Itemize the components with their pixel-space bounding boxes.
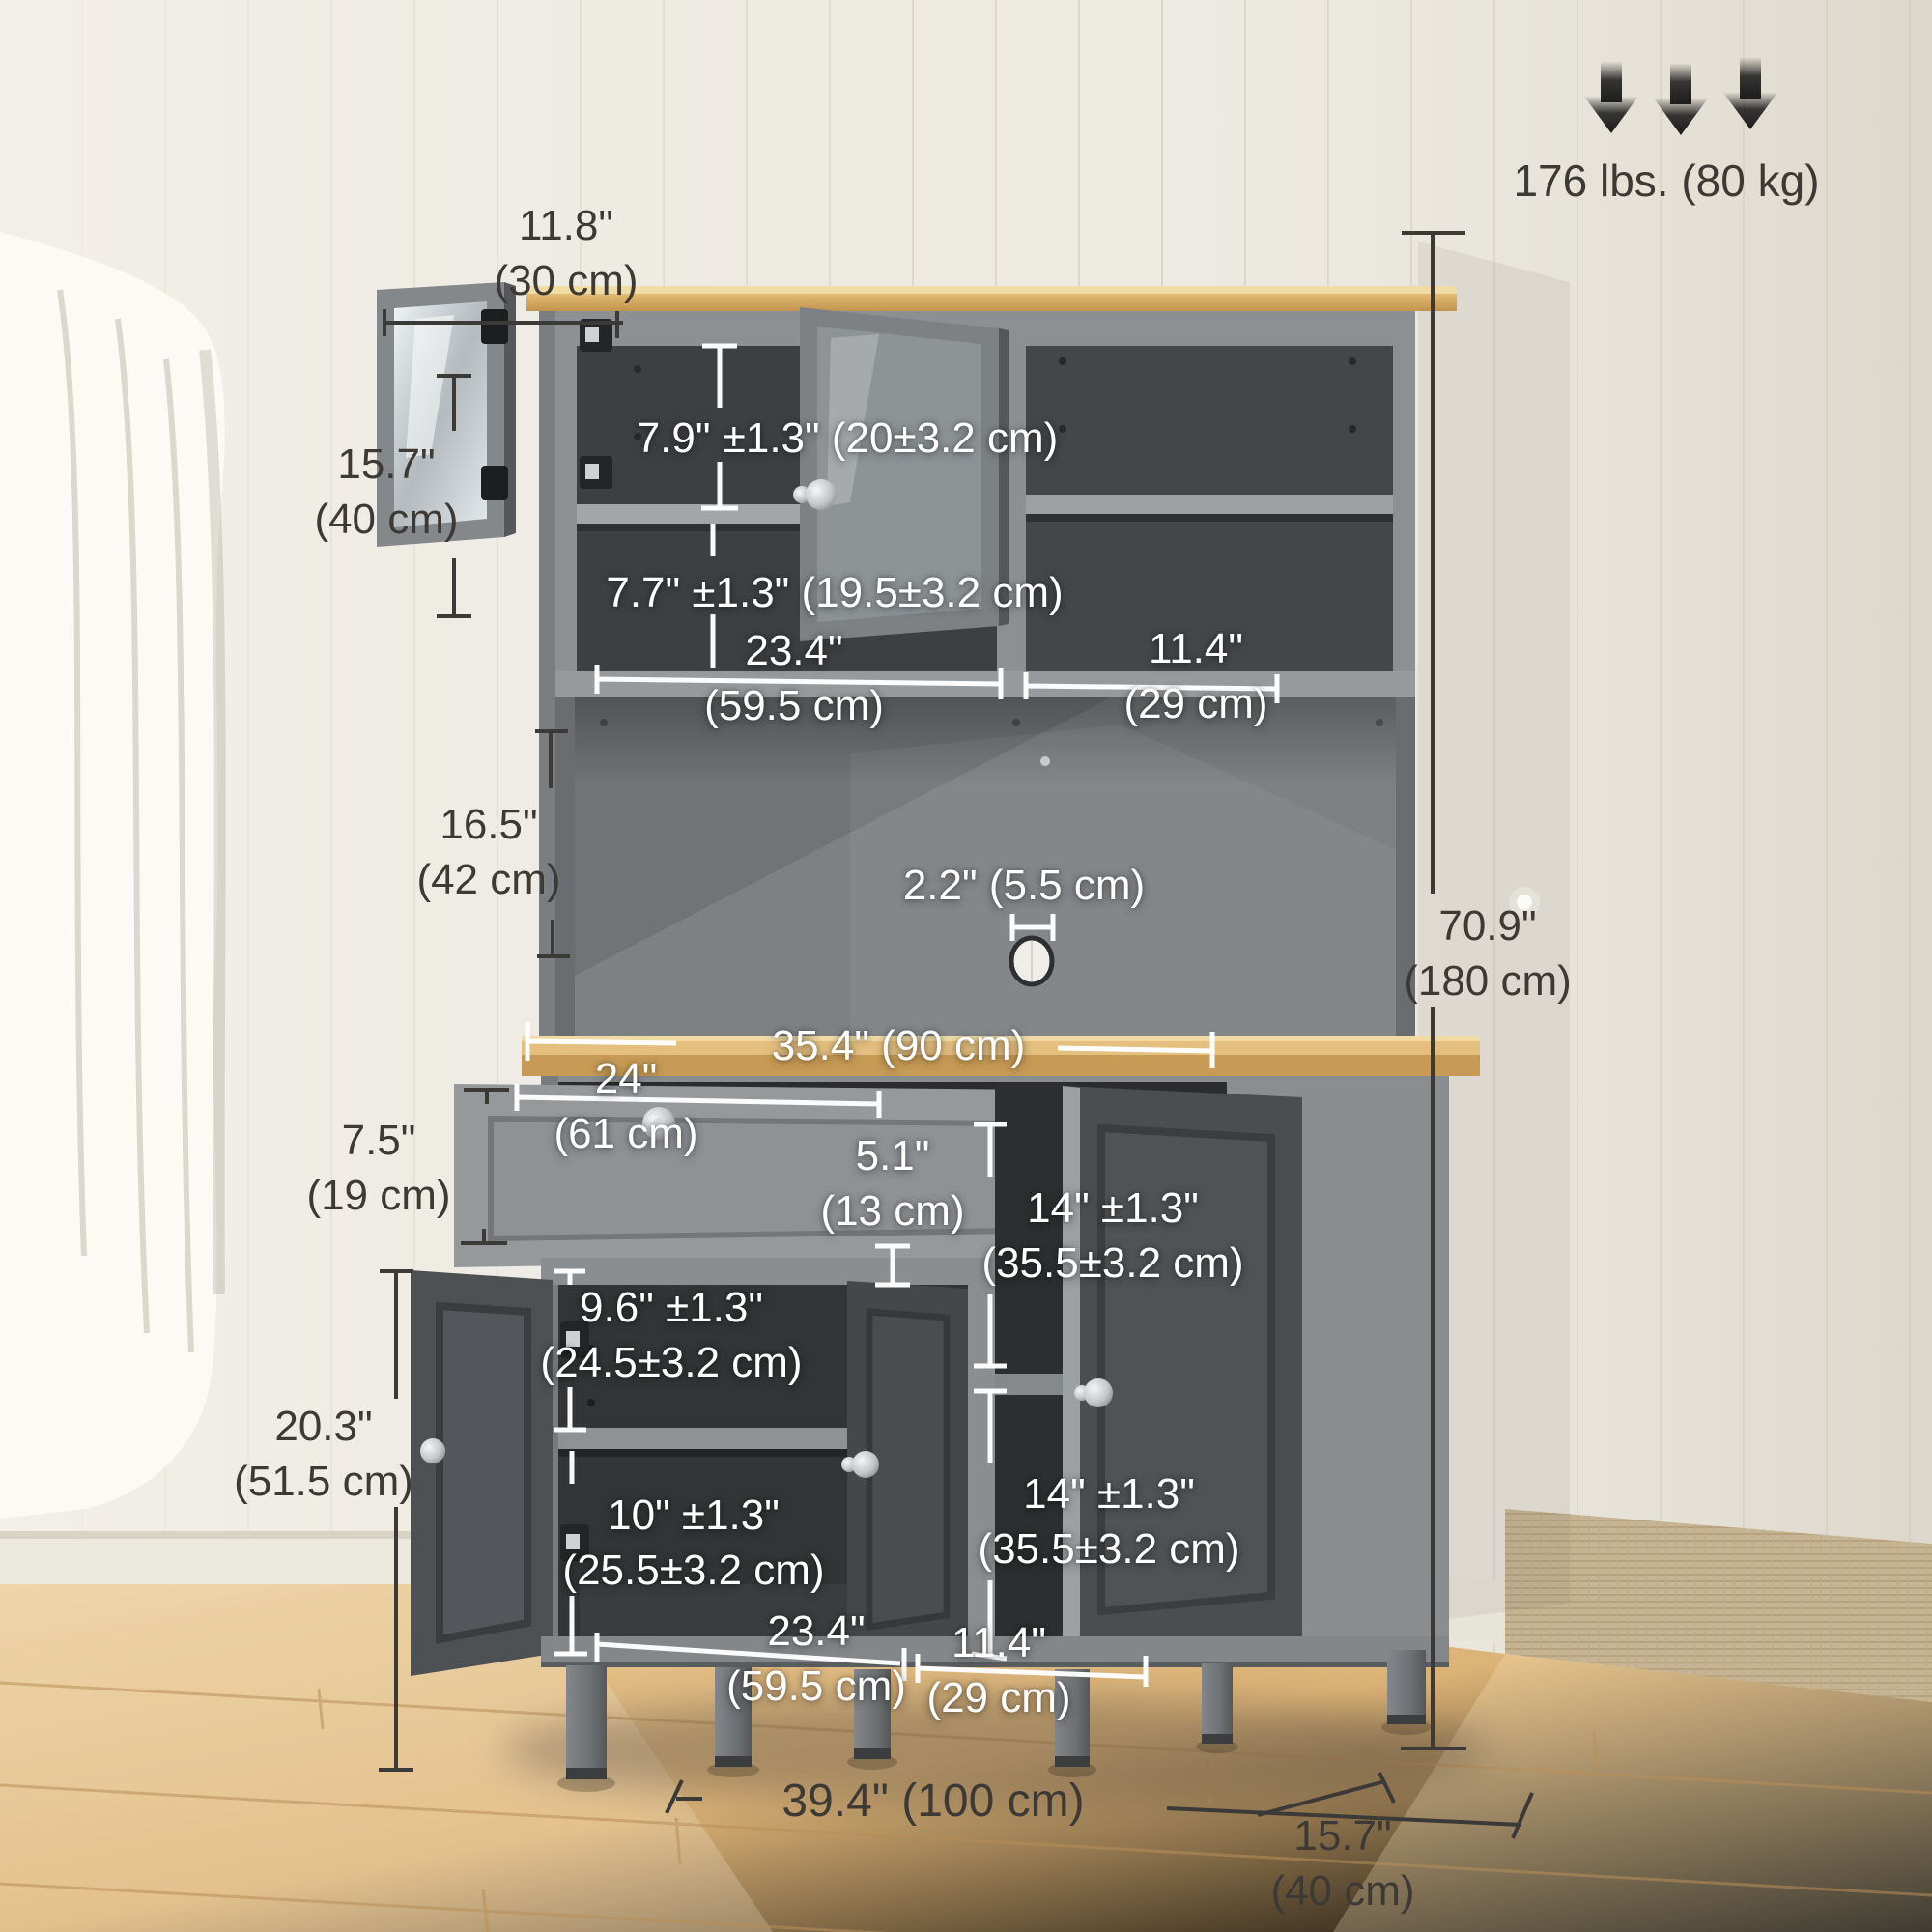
baseboard-left	[0, 1531, 444, 1584]
dim-drawer-height: 7.5" (19 cm)	[306, 1113, 450, 1223]
knob-icon	[852, 1451, 879, 1478]
dim-right-upper-compartment: 14" ±1.3" (35.5±3.2 cm)	[981, 1180, 1243, 1291]
dim-weight-capacity: 176 lbs. (80 kg)	[1513, 153, 1819, 211]
dim-hutch-shelf-lower: 7.7" ±1.3" (19.5±3.2 cm)	[606, 565, 1063, 620]
dim-overall-depth: 15.7" (40 cm)	[1270, 1808, 1414, 1918]
dim-countertop-width: 35.4" (90 cm)	[772, 1018, 1026, 1073]
dim-right-lower-compartment: 14" ±1.3" (35.5±3.2 cm)	[978, 1466, 1239, 1577]
dim-hutch-door-height: 15.7" (40 cm)	[314, 437, 458, 547]
door-left	[411, 1270, 553, 1676]
dim-cable-hole: 2.2" (5.5 cm)	[903, 858, 1145, 913]
dim-open-shelf-height: 16.5" (42 cm)	[416, 797, 560, 907]
dim-hutch-shelf-upper: 7.9" ±1.3" (20±3.2 cm)	[637, 411, 1059, 466]
dim-overall-height: 70.9" (180 cm)	[1404, 898, 1572, 1009]
knob-icon	[420, 1438, 445, 1463]
hutch-top-board	[526, 286, 1457, 311]
product-dimension-diagram: 176 lbs. (80 kg) 11.8" (30 cm) 15.7" (40…	[0, 0, 1932, 1932]
dim-base-cabinet-height: 20.3" (51.5 cm)	[234, 1399, 413, 1509]
dim-drawer-width: 24" (61 cm)	[554, 1051, 697, 1161]
dim-hutch-door-width: 11.8" (30 cm)	[494, 198, 638, 308]
dim-left-shelf-upper: 9.6" ±1.3" (24.5±3.2 cm)	[540, 1280, 802, 1390]
dim-base-left-width: 23.4" (59.5 cm)	[726, 1604, 906, 1714]
leg	[557, 1665, 615, 1792]
dim-overall-width: 39.4" (100 cm)	[781, 1772, 1084, 1832]
dim-base-right-width: 11.4" (29 cm)	[926, 1615, 1070, 1725]
door-middle	[841, 1281, 968, 1658]
baseboard-shadow	[0, 1531, 444, 1539]
load-arrows	[1584, 58, 1777, 135]
knob-icon	[1084, 1378, 1113, 1407]
dim-drawer-depth: 5.1" (13 cm)	[820, 1128, 964, 1238]
dim-hutch-right-width: 11.4" (29 cm)	[1123, 621, 1267, 731]
leg	[1381, 1650, 1432, 1735]
dim-hutch-left-width: 23.4" (59.5 cm)	[704, 623, 884, 733]
leg	[1196, 1663, 1238, 1753]
curtain	[0, 232, 225, 1519]
dim-left-shelf-lower: 10" ±1.3" (25.5±3.2 cm)	[562, 1488, 824, 1598]
knob-icon	[806, 479, 837, 510]
cable-hole	[1011, 938, 1052, 984]
